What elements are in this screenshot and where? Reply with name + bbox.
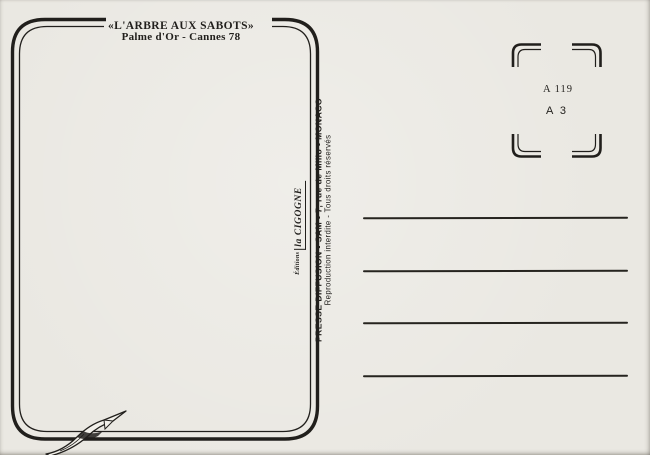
- address-line: [363, 217, 628, 219]
- stamp-code-a3: A 3: [546, 105, 568, 117]
- publisher-line1: PRESSE DIFFUSION - SAM - 7, rue de Millo…: [314, 89, 324, 351]
- publisher-imprint: PRESSE DIFFUSION - SAM - 7, rue de Millo…: [314, 89, 333, 351]
- address-line: [363, 375, 628, 377]
- ribbon-ornament-icon: [46, 411, 126, 455]
- address-line: [363, 269, 628, 271]
- publisher-line2: Reproduction interdite - Tous droits rés…: [324, 89, 333, 351]
- logo-prefix: Éditions: [295, 252, 301, 275]
- card-title: «L'ARBRE AUX SABOTS» Palme d'Or - Cannes…: [108, 20, 254, 44]
- address-lines: [363, 217, 628, 379]
- logo-name: la CIGOGNE: [294, 181, 306, 250]
- photo-frame-border: [13, 20, 318, 440]
- editions-la-cigogne-logo: Éditionsla CIGOGNE: [288, 181, 306, 275]
- postcard-back: «L'ARBRE AUX SABOTS» Palme d'Or - Cannes…: [0, 0, 650, 455]
- title-line2: Palme d'Or - Cannes 78: [108, 32, 254, 44]
- address-line: [363, 322, 628, 324]
- stamp-corner-marks: [513, 45, 601, 157]
- stamp-code-a119: A 119: [543, 84, 573, 95]
